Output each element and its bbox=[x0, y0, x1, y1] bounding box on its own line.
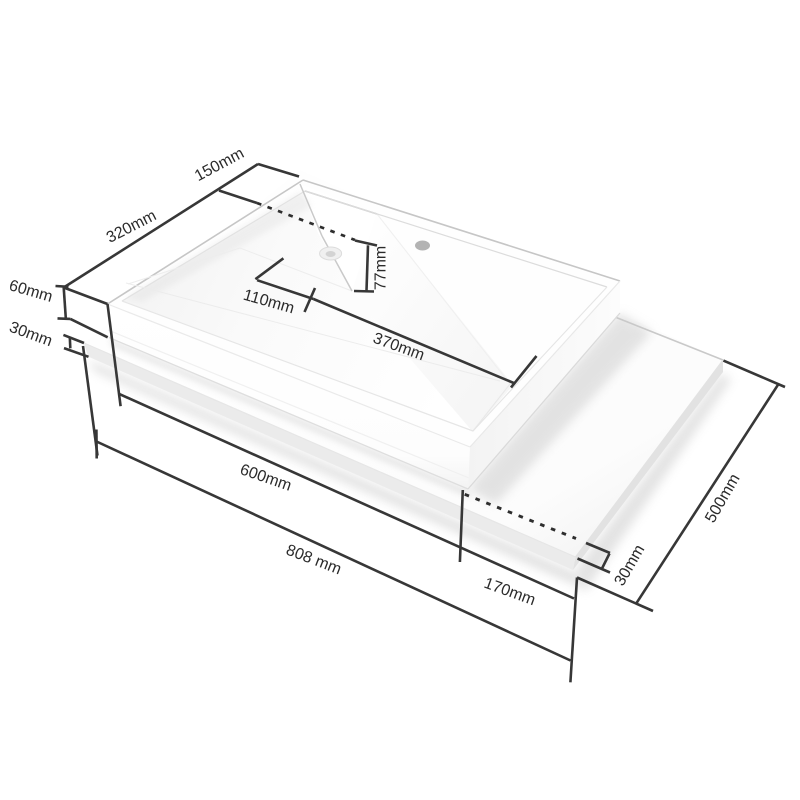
svg-text:77mm: 77mm bbox=[373, 246, 390, 290]
